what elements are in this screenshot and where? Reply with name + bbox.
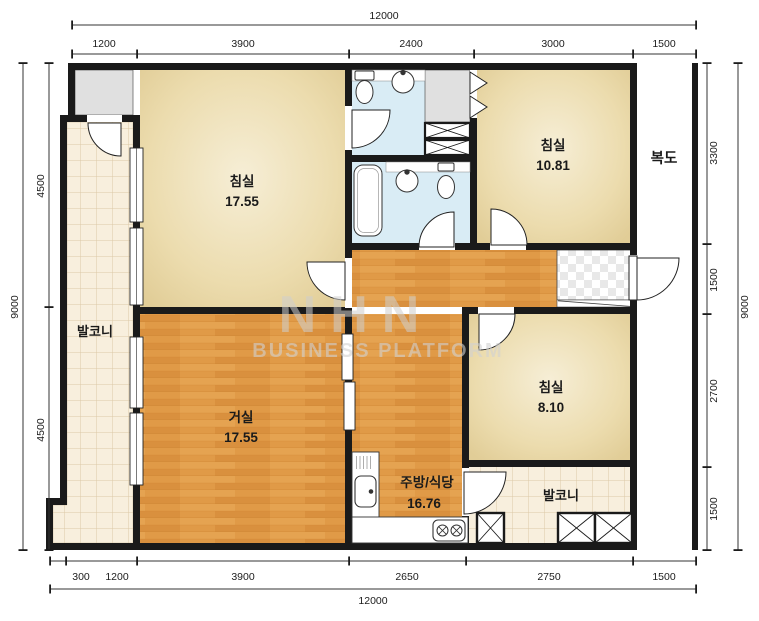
dim-left-total: 9000 [9, 295, 21, 319]
dim-bottom-3: 2650 [395, 571, 419, 583]
living-area: 17.55 [224, 430, 258, 445]
bath2-shelf [386, 162, 470, 172]
bedroom2-name: 침실 [541, 138, 566, 153]
bedroom3-area: 8.10 [538, 400, 564, 415]
watermark-subtitle: BUSINESS PLATFORM [252, 340, 503, 362]
wall-right-upper [630, 63, 637, 255]
balcony-right-label: 발코니 [543, 488, 579, 503]
stove [433, 520, 465, 541]
living-name: 거실 [229, 410, 254, 425]
window [130, 337, 143, 408]
balcony-left-label: 발코니 [77, 324, 113, 339]
kitchen-name: 주방/식당 [400, 474, 454, 490]
sink [392, 70, 414, 93]
toilet [438, 163, 455, 199]
bedroom1-name: 침실 [230, 174, 255, 189]
kitchen-area: 16.76 [407, 496, 441, 511]
dim-bottom-5: 1500 [652, 571, 676, 583]
dim-right-1: 1500 [708, 268, 720, 292]
corridor-floor [637, 63, 692, 550]
dim-bottom-total: 12000 [358, 595, 387, 607]
corridor-label: 복도 [651, 150, 678, 167]
wall-balcony-left [60, 115, 67, 505]
wall-utility-bottom-right [122, 115, 133, 122]
dim-right-0: 3300 [708, 141, 720, 165]
kitchen-sink [355, 476, 376, 507]
closet-box [425, 70, 470, 122]
dim-right-2: 2700 [708, 379, 720, 403]
bedroom2-area: 10.81 [536, 158, 570, 173]
bedroom3-name: 침실 [539, 380, 564, 395]
dim-left-0: 4500 [35, 174, 47, 198]
dim-right-3: 1500 [708, 497, 720, 521]
entry-floor [557, 250, 633, 300]
duct-shaft [425, 123, 470, 155]
dim-top-total: 12000 [369, 10, 398, 22]
dim-top-0: 1200 [92, 38, 116, 50]
toilet [355, 71, 374, 104]
floorplan-drawing: NHN BUSINESS PLATFORM 침실 17.55 침실 10.81 … [0, 0, 759, 621]
window [130, 413, 143, 485]
sink [396, 170, 418, 192]
dim-bottom-0: 300 [72, 571, 90, 583]
dim-top-1: 3900 [231, 38, 255, 50]
floorplan-page: NHN BUSINESS PLATFORM 침실 17.55 침실 10.81 … [0, 0, 759, 621]
dim-bottom-1: 1200 [105, 571, 129, 583]
window [130, 228, 143, 305]
utility-box [75, 70, 133, 115]
wall-bath-bottom [345, 243, 477, 250]
dim-bottom-2: 3900 [231, 571, 255, 583]
dim-top-2: 2400 [399, 38, 423, 50]
wall-top [68, 63, 637, 70]
front-door-leaf [629, 256, 637, 300]
dim-top-3: 3000 [541, 38, 565, 50]
bathtub [354, 165, 382, 236]
bedroom1-area: 17.55 [225, 194, 259, 209]
dim-left-1: 4500 [35, 418, 47, 442]
wall-corridor-outer [692, 63, 698, 550]
wall-bedroom3-bottom [462, 460, 637, 467]
dim-right-total: 9000 [739, 295, 751, 319]
window [130, 148, 143, 222]
dim-bottom-4: 2750 [537, 571, 561, 583]
watermark-brand: NHN [279, 286, 434, 344]
wall-left-top [68, 63, 75, 115]
dim-top-4: 1500 [652, 38, 676, 50]
wall-bottom [46, 543, 637, 550]
